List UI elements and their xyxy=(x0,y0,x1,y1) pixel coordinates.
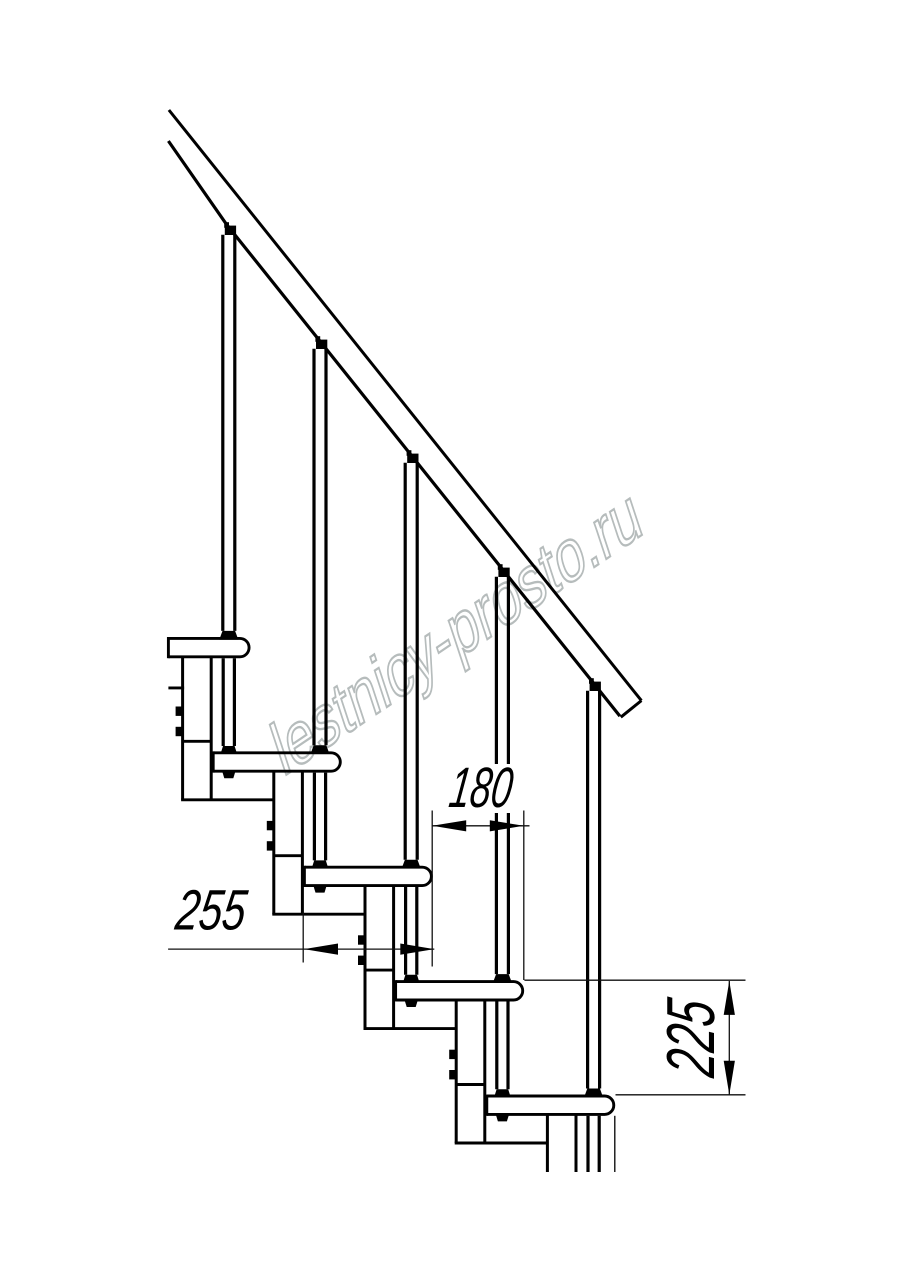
svg-text:225: 225 xyxy=(653,994,729,1081)
svg-text:255: 255 xyxy=(171,878,251,942)
svg-text:180: 180 xyxy=(446,756,517,819)
